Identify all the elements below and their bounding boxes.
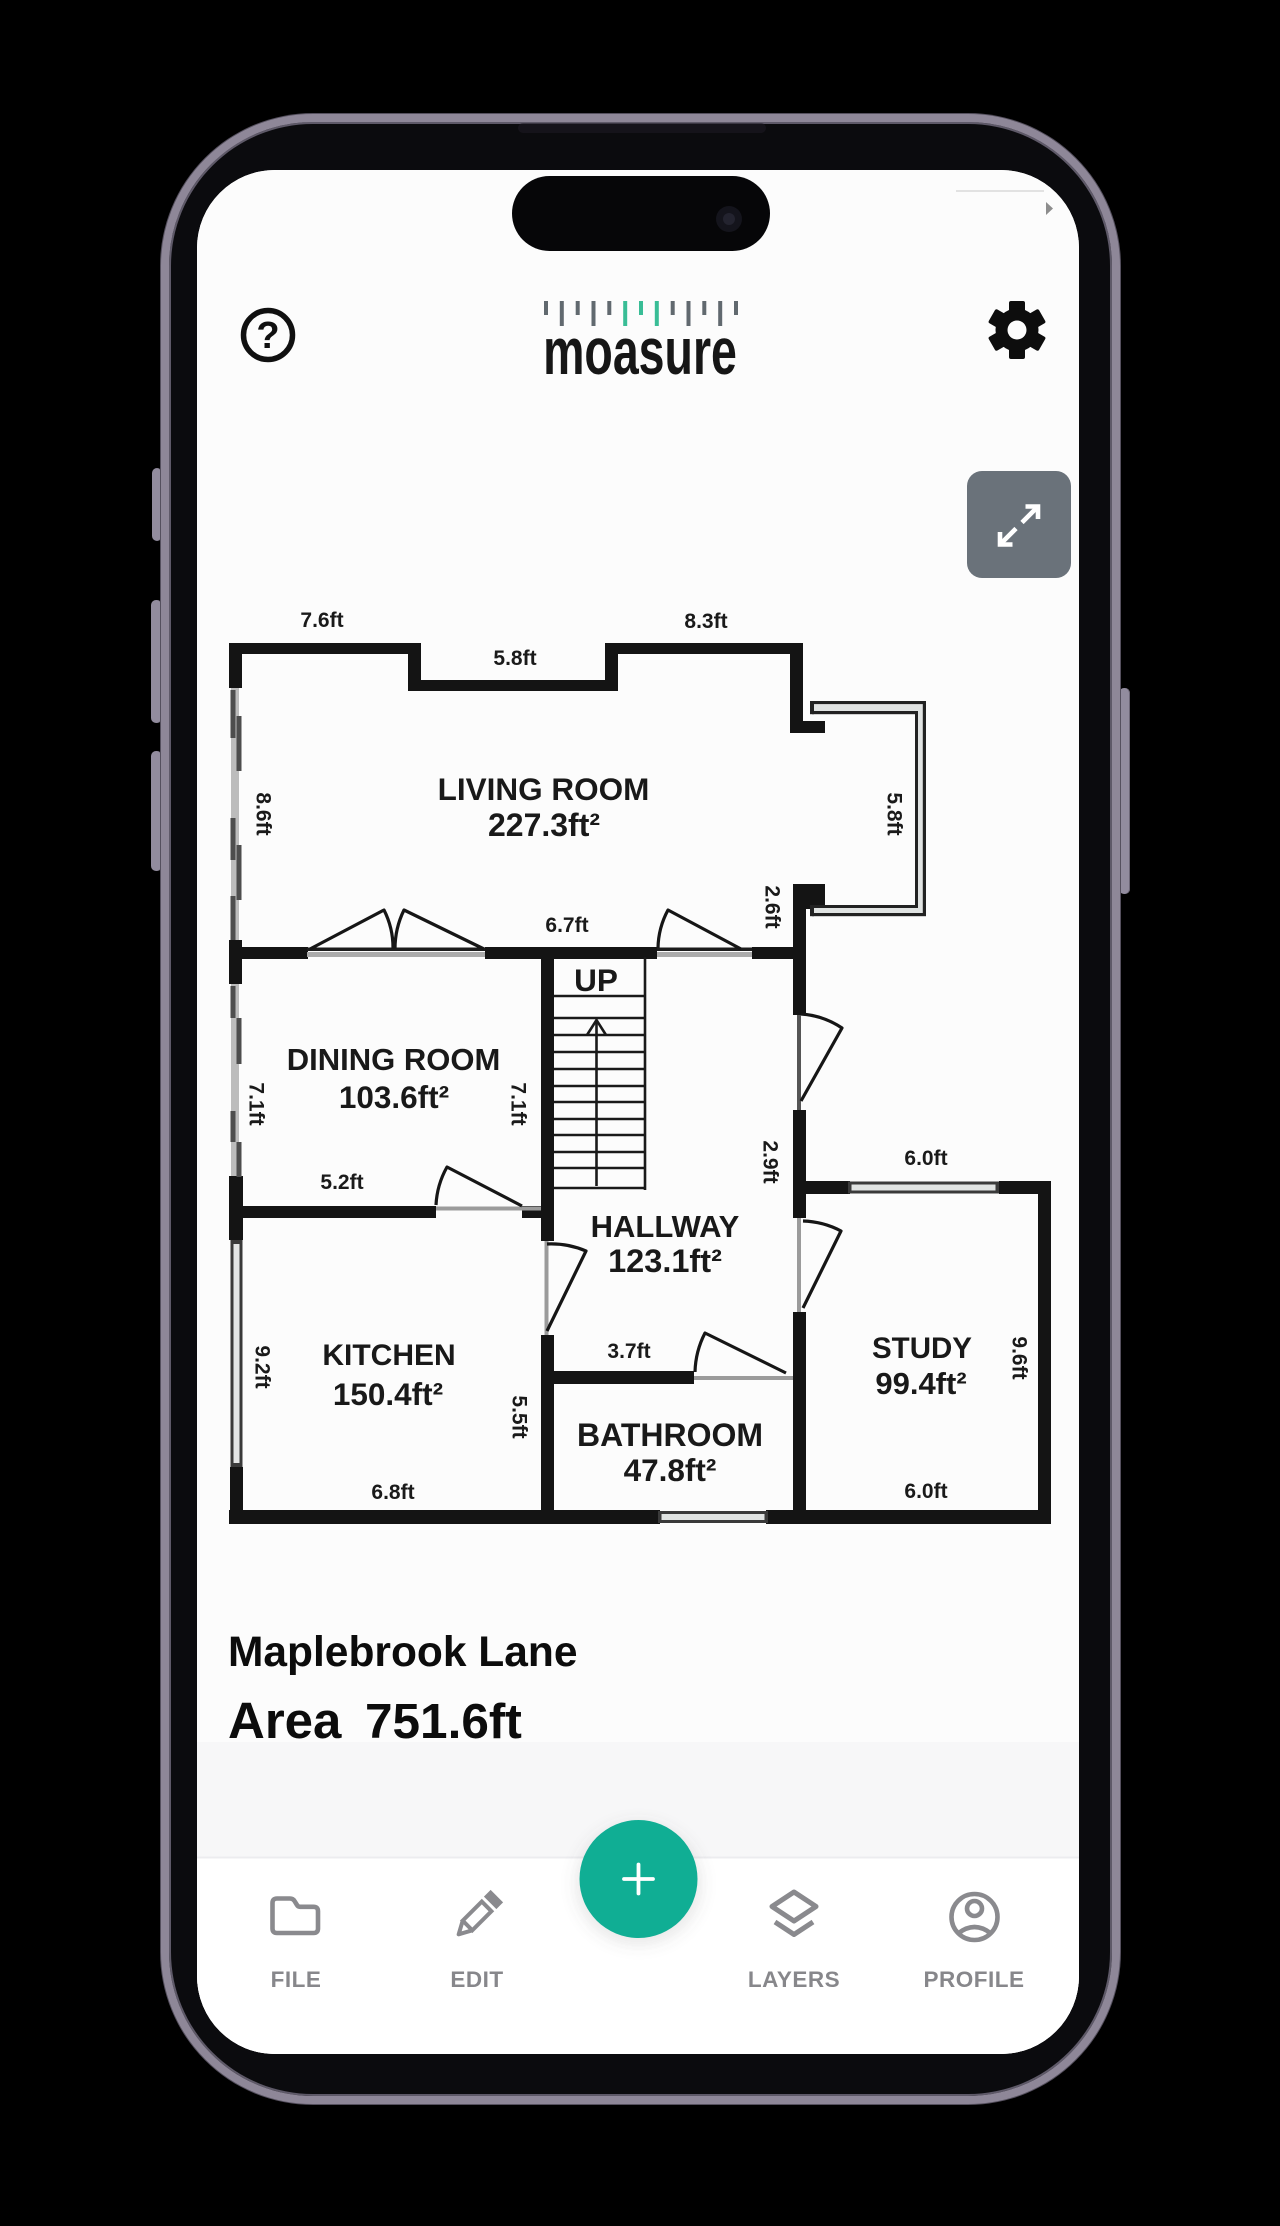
svg-text:FILE: FILE — [271, 1967, 322, 1992]
svg-text:moasure: moasure — [543, 315, 737, 389]
svg-text:8.6ft: 8.6ft — [252, 792, 275, 835]
svg-text:9.6ft: 9.6ft — [1008, 1336, 1031, 1379]
svg-text:103.6ft²: 103.6ft² — [339, 1079, 449, 1115]
svg-text:150.4ft²: 150.4ft² — [333, 1376, 443, 1412]
svg-text:HALLWAY: HALLWAY — [591, 1209, 740, 1244]
svg-text:UP: UP — [574, 962, 618, 998]
svg-text:5.8ft: 5.8ft — [883, 792, 906, 835]
svg-text:?: ? — [256, 315, 279, 357]
svg-text:5.5ft: 5.5ft — [508, 1395, 531, 1438]
svg-text:6.0ft: 6.0ft — [904, 1480, 947, 1503]
svg-text:STUDY: STUDY — [872, 1332, 972, 1365]
svg-text:123.1ft²: 123.1ft² — [608, 1243, 722, 1279]
svg-text:7.1ft: 7.1ft — [507, 1082, 530, 1125]
svg-text:2.6ft: 2.6ft — [761, 885, 784, 928]
svg-text:5.8ft: 5.8ft — [493, 647, 536, 670]
svg-text:7.6ft: 7.6ft — [300, 609, 343, 632]
svg-text:PROFILE: PROFILE — [923, 1967, 1024, 1992]
svg-text:EDIT: EDIT — [450, 1967, 503, 1992]
svg-text:6.0ft: 6.0ft — [904, 1147, 947, 1170]
svg-text:751.6ft: 751.6ft — [365, 1694, 522, 1749]
svg-text:Area: Area — [228, 1692, 342, 1749]
svg-text:2.9ft: 2.9ft — [759, 1140, 782, 1183]
svg-text:9.2ft: 9.2ft — [251, 1345, 274, 1388]
svg-text:7.1ft: 7.1ft — [245, 1082, 268, 1125]
svg-text:47.8ft²: 47.8ft² — [624, 1452, 717, 1488]
svg-text:LAYERS: LAYERS — [748, 1967, 840, 1992]
svg-text:3.7ft: 3.7ft — [607, 1340, 650, 1363]
svg-text:8.3ft: 8.3ft — [684, 610, 727, 633]
svg-text:5.2ft: 5.2ft — [320, 1171, 363, 1194]
svg-text:DINING ROOM: DINING ROOM — [287, 1042, 501, 1077]
svg-text:227.3ft²: 227.3ft² — [488, 807, 600, 843]
svg-text:KITCHEN: KITCHEN — [322, 1339, 455, 1372]
svg-text:99.4ft²: 99.4ft² — [875, 1366, 966, 1401]
svg-text:BATHROOM: BATHROOM — [577, 1417, 763, 1453]
svg-text:6.7ft: 6.7ft — [545, 914, 588, 937]
svg-text:6.8ft: 6.8ft — [371, 1481, 414, 1504]
svg-text:LIVING ROOM: LIVING ROOM — [438, 771, 650, 807]
svg-text:Maplebrook Lane: Maplebrook Lane — [228, 1629, 578, 1676]
